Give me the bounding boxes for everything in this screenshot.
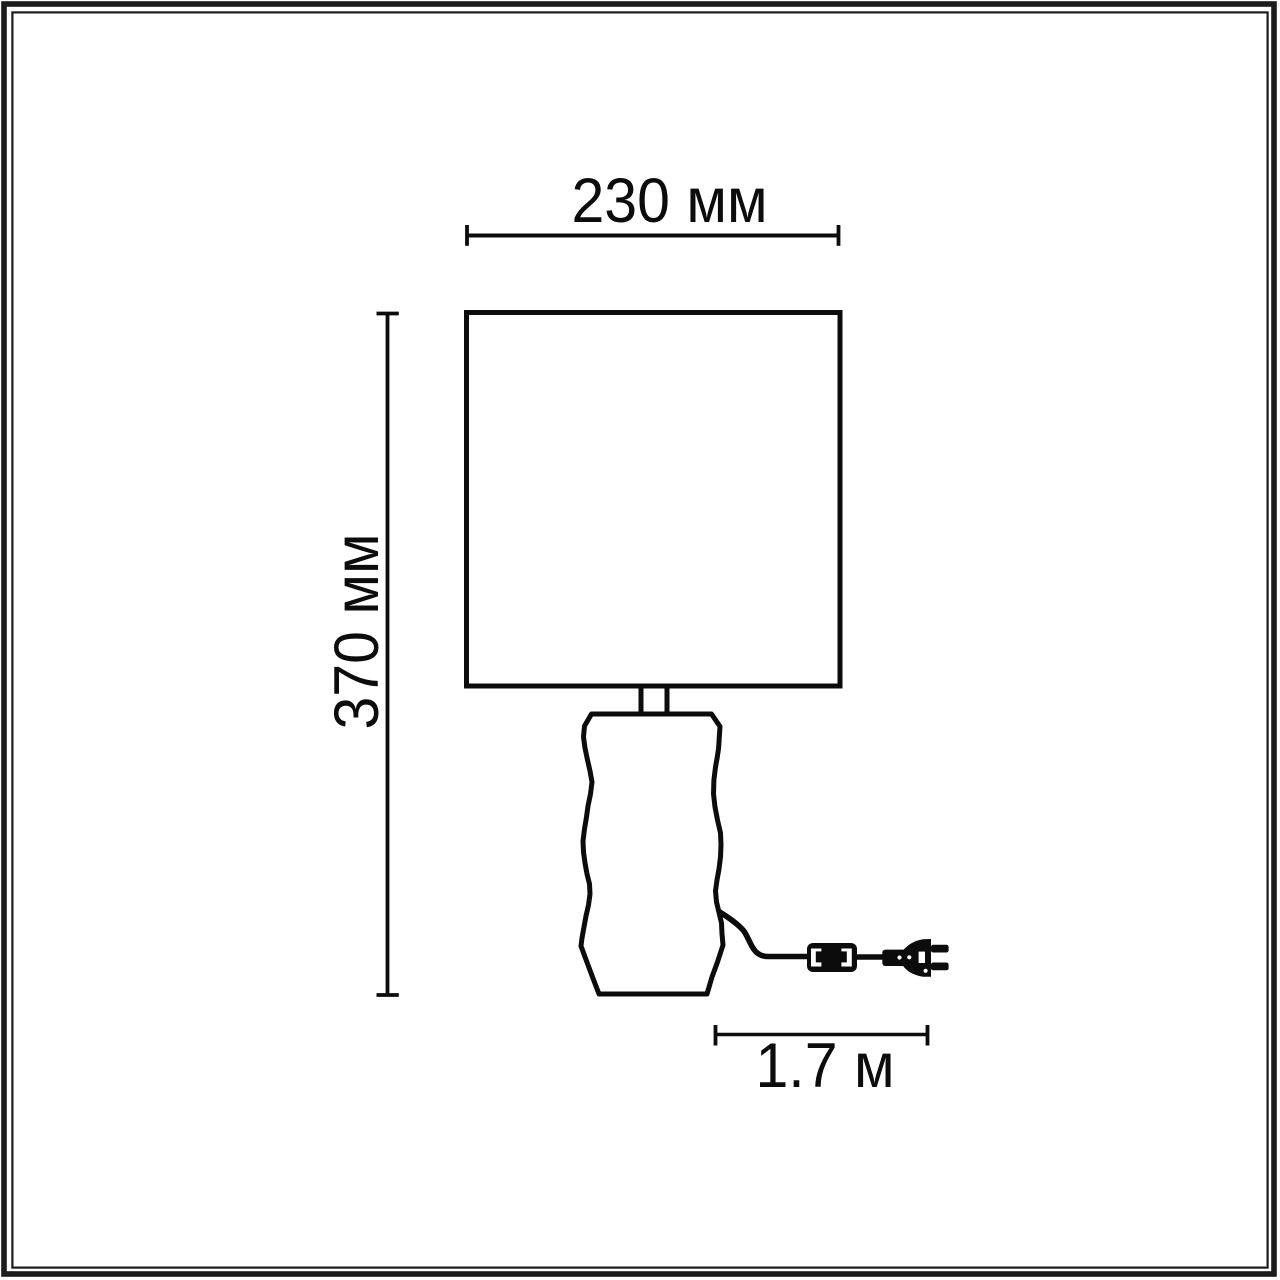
svg-text:1.7 м: 1.7 м xyxy=(755,1029,894,1100)
svg-text:370 мм: 370 мм xyxy=(320,533,391,729)
svg-text:230 мм: 230 мм xyxy=(571,164,767,235)
